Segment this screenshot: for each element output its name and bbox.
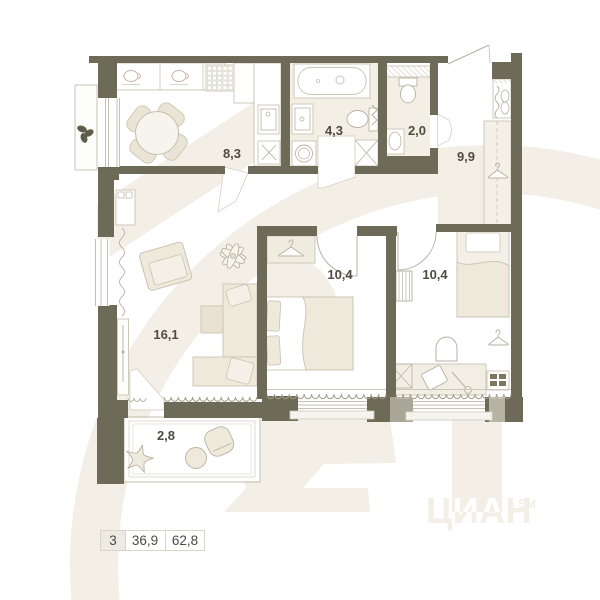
svg-text:36,9: 36,9 (132, 533, 158, 548)
svg-text:4,3: 4,3 (325, 123, 343, 138)
svg-text:8,3: 8,3 (223, 146, 241, 161)
svg-text:2,0: 2,0 (408, 123, 426, 138)
svg-text:3: 3 (109, 533, 117, 548)
svg-text:SM: SM (518, 497, 536, 511)
svg-text:16,1: 16,1 (153, 327, 178, 342)
svg-text:2,8: 2,8 (157, 428, 175, 443)
svg-text:10,4: 10,4 (422, 267, 448, 282)
svg-text:62,8: 62,8 (172, 533, 198, 548)
svg-text:9,9: 9,9 (457, 149, 475, 164)
svg-text:10,4: 10,4 (327, 267, 353, 282)
